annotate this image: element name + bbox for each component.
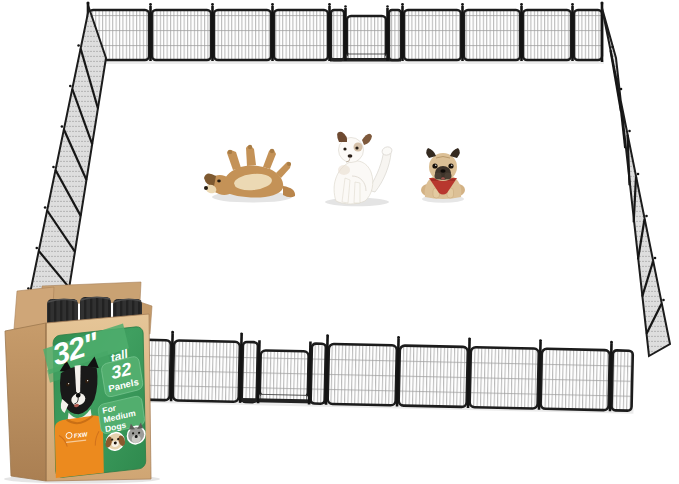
dog-scratching (325, 132, 393, 206)
right-fence-side (602, 8, 670, 356)
fence-panel (274, 10, 328, 60)
dog-rolling (204, 145, 295, 203)
back-fence-row (86, 1, 604, 64)
product-box: FXW 32" tall 32 Panels For Medium Dogs (4, 282, 160, 484)
fence-panel (173, 340, 240, 401)
box-side-face (5, 323, 46, 481)
fence-panel (152, 10, 211, 60)
fence-panel (464, 10, 520, 60)
gate-side-panel (331, 10, 344, 60)
fence-panel (328, 344, 397, 406)
gate-side-panel (242, 342, 258, 402)
fence-panel (574, 10, 602, 60)
front-gate (241, 342, 328, 404)
fence-panel (541, 349, 610, 411)
gate-side-panel (389, 10, 401, 60)
fence-panel (399, 345, 468, 407)
fence-panel (214, 10, 271, 60)
collie-shirt (55, 415, 104, 478)
gate-door (260, 350, 309, 397)
gate-door (347, 16, 386, 56)
dog-pug (421, 148, 465, 203)
back-gate (330, 10, 401, 62)
fence-panel (523, 10, 571, 60)
gate-side-panel (311, 343, 326, 403)
fence-panel (470, 347, 539, 409)
product-image: FXW 32" tall 32 Panels For Medium Dogs (0, 0, 679, 484)
fence-panel (611, 350, 632, 410)
box-label: FXW 32" tall 32 Panels For Medium Dogs (43, 320, 147, 479)
playpen-scene: FXW 32" tall 32 Panels For Medium Dogs (0, 0, 679, 484)
fence-panel (404, 10, 461, 60)
